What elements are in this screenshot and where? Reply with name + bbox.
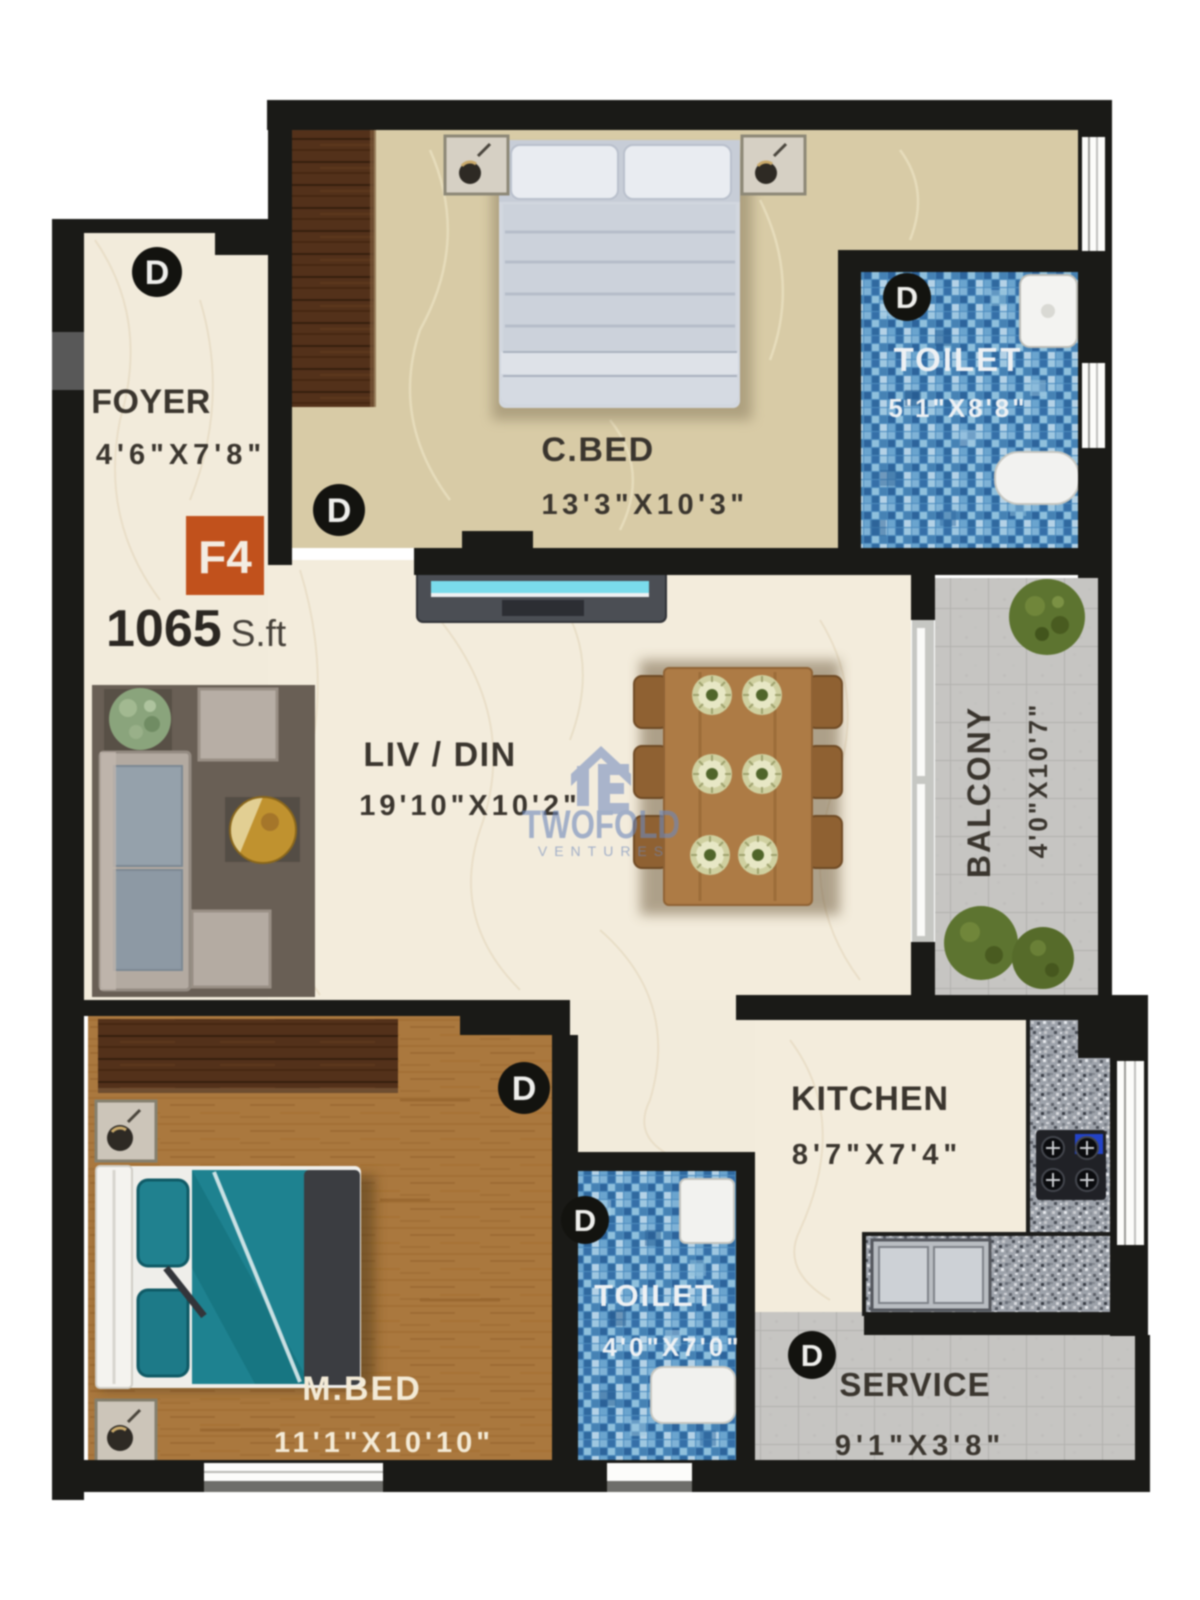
svg-text:8'7"X7'4": 8'7"X7'4" [792, 1139, 962, 1171]
svg-text:4'0"X7'0": 4'0"X7'0" [602, 1332, 741, 1362]
svg-text:D: D [574, 1203, 596, 1238]
svg-text:KITCHEN: KITCHEN [791, 1080, 949, 1118]
svg-text:4'0"X10'7": 4'0"X10'7" [1023, 702, 1053, 859]
svg-text:13'3"X10'3": 13'3"X10'3" [542, 489, 749, 521]
svg-text:11'1"X10'10": 11'1"X10'10" [274, 1427, 494, 1459]
svg-text:D: D [327, 492, 352, 530]
svg-text:VENTURES: VENTURES [538, 843, 670, 859]
svg-text:TWOFOLD: TWOFOLD [522, 803, 680, 847]
svg-text:9'1"X3'8": 9'1"X3'8" [835, 1430, 1005, 1462]
svg-text:FOYER: FOYER [91, 383, 211, 421]
svg-text:D: D [512, 1070, 537, 1108]
svg-text:F4: F4 [198, 531, 252, 583]
svg-text:5'1"X8'8": 5'1"X8'8" [888, 393, 1027, 423]
svg-text:TOILET: TOILET [894, 341, 1023, 378]
svg-text:C.BED: C.BED [541, 431, 654, 469]
svg-text:D: D [145, 254, 170, 292]
svg-text:TOILET: TOILET [594, 1278, 716, 1313]
svg-text:BALCONY: BALCONY [961, 706, 997, 878]
svg-text:D: D [801, 1338, 823, 1373]
svg-text:4'6"X7'8": 4'6"X7'8" [96, 439, 266, 471]
svg-text:D: D [896, 280, 918, 315]
svg-text:LIV / DIN: LIV / DIN [363, 736, 516, 774]
svg-text:M.BED: M.BED [302, 1370, 422, 1408]
svg-text:SERVICE: SERVICE [839, 1366, 990, 1403]
